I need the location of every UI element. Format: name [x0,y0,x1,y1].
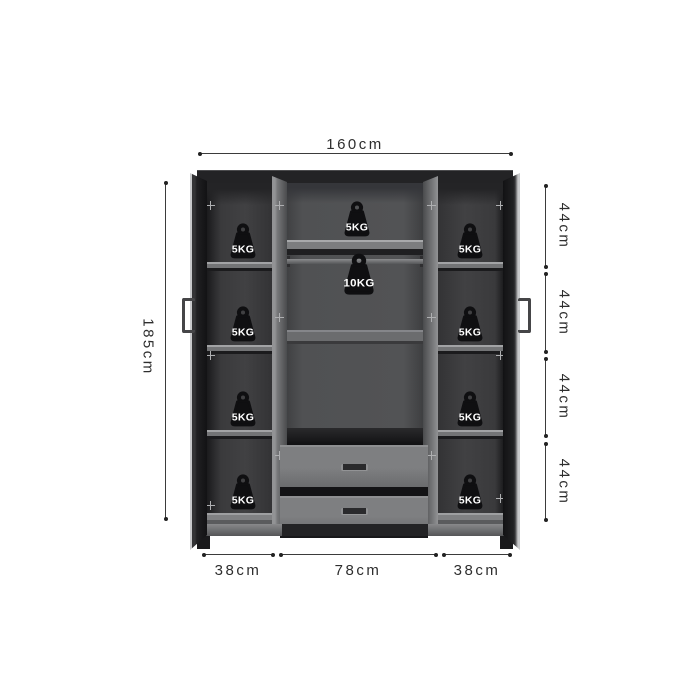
weight-label: 5KG [232,243,254,255]
weight-icon: 10KG [338,253,380,299]
weight-label: 10KG [343,278,374,290]
drawer-top-ledge [278,428,432,445]
hinge-icon [206,501,215,510]
weight-icon: 5KG [452,306,488,345]
weight-label: 5KG [459,326,481,338]
bottom-board [205,513,272,524]
drawer-handle [341,508,368,514]
dim-right-segment-1-line [545,185,546,268]
dim-right-segment-3-line [545,358,546,437]
dim-bottom-segment-3-label: 38cm [454,562,501,579]
drawer-gap [280,487,428,496]
cabinet-top-panel [197,170,513,183]
hinge-icon [206,351,215,360]
dim-left-height-line [165,182,166,520]
dim-right-segment-3-label: 44cm [556,374,573,421]
door-handle-icon [182,298,195,333]
weight-icon: 5KG [452,223,488,262]
base-board [197,524,282,536]
dim-right-segment-4-line [545,443,546,521]
hinge-icon [427,201,436,210]
shelf [205,345,272,354]
door-handle-icon [518,298,531,333]
dim-bottom-segment-3-line [443,554,511,555]
shelf [205,430,272,439]
right-outer-door [503,167,520,550]
drawer-handle [341,464,368,470]
weight-label: 5KG [232,411,254,423]
weight-label: 5KG [346,221,368,233]
base-board-center [282,524,428,536]
shelf [205,262,272,271]
dim-bottom-segment-1-label: 38cm [215,562,262,579]
dim-bottom-segment-1-line [203,554,274,555]
weight-icon: 5KG [225,223,261,262]
weight-icon: 5KG [339,201,375,240]
weight-icon: 5KG [225,474,261,513]
wardrobe-dimension-diagram: 160cm 185cm 44cm 44cm 44cm 44cm 38cm 78c… [0,0,700,700]
weight-icon: 5KG [452,474,488,513]
base-board [428,524,513,536]
hinge-icon [275,313,284,322]
shelf [438,430,505,439]
dim-left-height-label: 185cm [140,318,157,376]
weight-label: 5KG [459,243,481,255]
dim-bottom-segment-2-line [280,554,437,555]
weight-label: 5KG [459,411,481,423]
shelf [438,345,505,354]
weight-icon: 5KG [225,391,261,430]
dim-right-segment-1-label: 44cm [556,203,573,250]
weight-icon: 5KG [225,306,261,345]
weight-label: 5KG [232,326,254,338]
shelf [438,262,505,271]
dim-top-width-line [199,153,512,154]
weight-icon: 5KG [452,391,488,430]
hinge-icon [275,201,284,210]
hinge-icon [427,313,436,322]
dim-top-width-label: 160cm [326,136,384,153]
dim-right-segment-4-label: 44cm [556,459,573,506]
weight-label: 5KG [232,494,254,506]
bottom-board [438,513,505,524]
dim-right-segment-2-line [545,273,546,353]
weight-label: 5KG [459,494,481,506]
left-outer-door [190,167,207,550]
hinge-icon [206,201,215,210]
hinge-icon [427,451,436,460]
center-support-beam [287,330,424,344]
dim-right-segment-2-label: 44cm [556,290,573,337]
dim-bottom-segment-2-label: 78cm [335,562,382,579]
